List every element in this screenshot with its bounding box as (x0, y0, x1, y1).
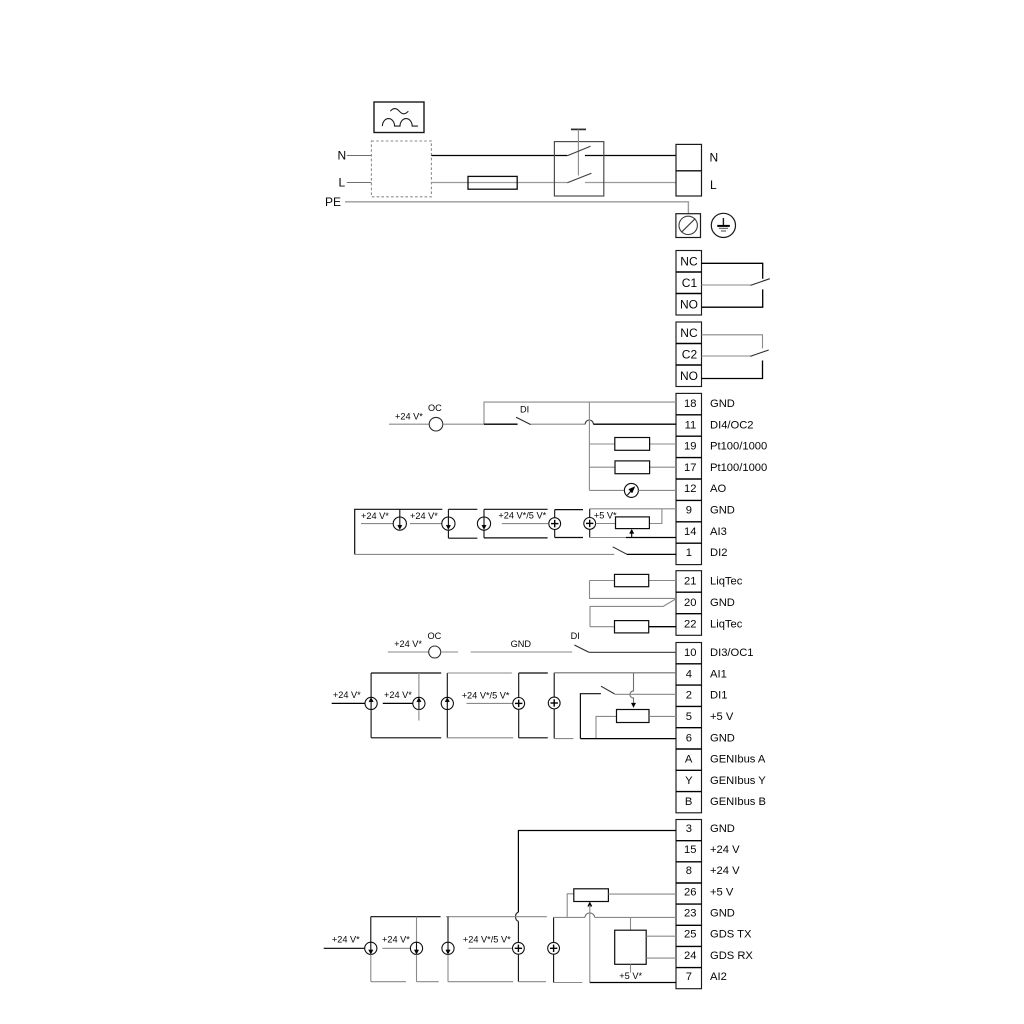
svg-text:NO: NO (680, 369, 698, 383)
svg-text:1: 1 (686, 547, 692, 559)
svg-text:+24 V*/5 V*: +24 V*/5 V* (463, 935, 511, 945)
svg-text:PE: PE (325, 195, 341, 209)
svg-text:NO: NO (680, 298, 698, 312)
svg-text:2: 2 (686, 690, 692, 702)
svg-text:DI: DI (520, 404, 529, 414)
svg-text:14: 14 (684, 526, 696, 538)
svg-text:GND: GND (511, 639, 532, 649)
svg-text:+24 V*/5 V*: +24 V*/5 V* (498, 511, 546, 521)
svg-text:B: B (685, 796, 692, 808)
svg-text:+24 V: +24 V (710, 844, 740, 856)
svg-text:DI4/OC2: DI4/OC2 (710, 419, 754, 431)
svg-text:+5 V: +5 V (710, 711, 734, 723)
svg-text:DI3/OC1: DI3/OC1 (710, 647, 754, 659)
svg-text:GENIbus B: GENIbus B (710, 796, 766, 808)
svg-text:GND: GND (710, 398, 735, 410)
svg-text:11: 11 (685, 419, 697, 431)
svg-text:+24 V*: +24 V* (361, 511, 389, 521)
svg-text:L: L (710, 178, 717, 192)
svg-text:25: 25 (684, 929, 696, 941)
svg-text:Y: Y (685, 775, 693, 787)
svg-text:LiqTec: LiqTec (710, 619, 743, 631)
svg-text:GND: GND (710, 505, 735, 517)
svg-text:+24 V: +24 V (710, 865, 740, 877)
svg-text:9: 9 (686, 505, 692, 517)
svg-text:OC: OC (428, 631, 442, 641)
svg-text:+24 V*: +24 V* (332, 935, 360, 945)
svg-text:26: 26 (684, 886, 696, 898)
svg-text:6: 6 (686, 732, 692, 744)
svg-text:23: 23 (684, 908, 696, 920)
svg-text:+24 V*: +24 V* (382, 935, 410, 945)
svg-text:Pt100/1000: Pt100/1000 (710, 441, 767, 453)
svg-text:8: 8 (686, 865, 692, 877)
svg-text:N: N (338, 149, 347, 163)
svg-text:17: 17 (684, 462, 696, 474)
svg-text:A: A (685, 754, 693, 766)
svg-text:+24 V*: +24 V* (394, 639, 422, 649)
svg-text:12: 12 (684, 483, 696, 495)
svg-text:+24 V*: +24 V* (333, 690, 361, 700)
svg-text:+5 V*: +5 V* (619, 971, 642, 981)
svg-text:AI3: AI3 (710, 526, 727, 538)
svg-text:4: 4 (686, 668, 692, 680)
svg-text:21: 21 (684, 576, 696, 588)
svg-text:18: 18 (684, 398, 696, 410)
svg-text:C2: C2 (682, 347, 698, 361)
svg-text:C1: C1 (682, 276, 698, 290)
svg-text:LiqTec: LiqTec (710, 576, 743, 588)
svg-text:GND: GND (710, 823, 735, 835)
svg-text:24: 24 (684, 950, 696, 962)
svg-text:3: 3 (686, 823, 692, 835)
svg-text:DI2: DI2 (710, 547, 727, 559)
svg-text:GDS RX: GDS RX (710, 950, 753, 962)
svg-text:GENIbus Y: GENIbus Y (710, 775, 766, 787)
svg-text:20: 20 (684, 597, 696, 609)
svg-text:10: 10 (684, 647, 696, 659)
svg-text:7: 7 (686, 971, 692, 983)
svg-text:+5 V*: +5 V* (594, 510, 617, 520)
svg-text:19: 19 (684, 441, 696, 453)
svg-text:+24 V*/5 V*: +24 V*/5 V* (462, 691, 510, 701)
svg-text:+5 V: +5 V (710, 886, 734, 898)
svg-text:AO: AO (710, 483, 726, 495)
svg-text:GDS TX: GDS TX (710, 929, 752, 941)
svg-text:22: 22 (684, 619, 696, 631)
svg-text:AI2: AI2 (710, 971, 727, 983)
svg-text:NC: NC (680, 255, 698, 269)
svg-text:GND: GND (710, 908, 735, 920)
svg-text:5: 5 (686, 711, 692, 723)
svg-text:+24 V*: +24 V* (395, 412, 423, 422)
svg-text:Pt100/1000: Pt100/1000 (710, 462, 767, 474)
svg-text:DI: DI (571, 631, 580, 641)
svg-text:L: L (339, 176, 346, 190)
svg-text:GND: GND (710, 597, 735, 609)
svg-text:AI1: AI1 (710, 668, 727, 680)
svg-text:GND: GND (710, 732, 735, 744)
svg-text:N: N (710, 151, 719, 165)
svg-text:GENIbus A: GENIbus A (710, 754, 766, 766)
svg-text:OC: OC (428, 403, 442, 413)
svg-text:+24 V*: +24 V* (384, 690, 412, 700)
svg-text:DI1: DI1 (710, 690, 727, 702)
svg-text:NC: NC (680, 326, 698, 340)
svg-text:+24 V*: +24 V* (410, 511, 438, 521)
svg-text:15: 15 (684, 844, 696, 856)
